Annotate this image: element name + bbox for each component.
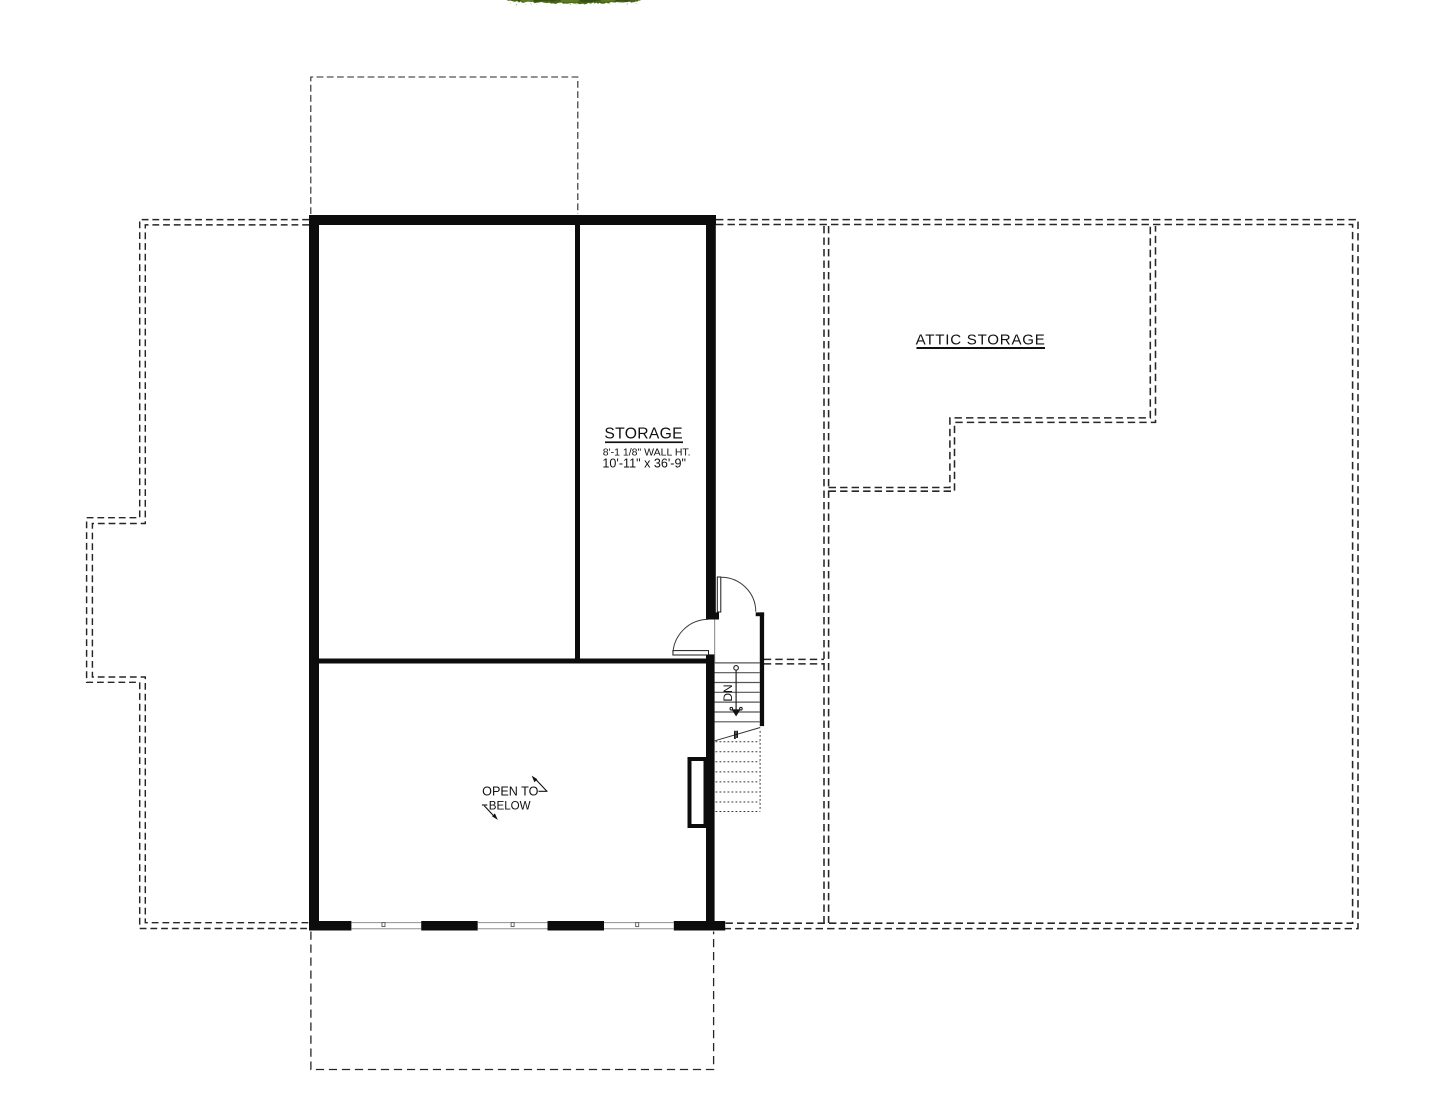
- svg-text:BELOW: BELOW: [489, 799, 531, 812]
- svg-text:STORAGE: STORAGE: [604, 425, 683, 442]
- svg-text:ATTIC STORAGE: ATTIC STORAGE: [916, 332, 1046, 349]
- svg-text:10'-11" x 36'-9": 10'-11" x 36'-9": [602, 456, 686, 470]
- svg-text:DN: DN: [721, 684, 735, 701]
- svg-text:OPEN TO: OPEN TO: [482, 784, 538, 798]
